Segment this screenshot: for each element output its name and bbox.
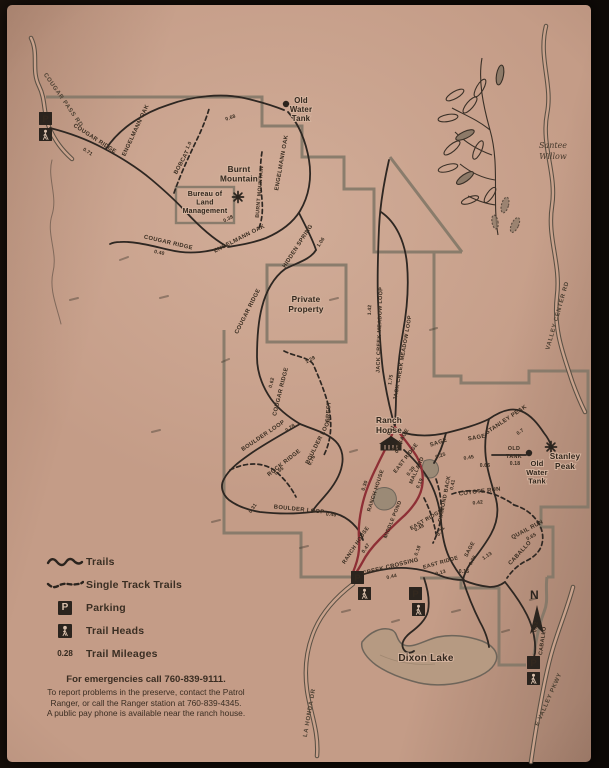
mileage-0-66: 0.66 bbox=[480, 463, 491, 469]
mileage-0-44: 0.44 bbox=[386, 573, 398, 581]
svg-text:P: P bbox=[354, 573, 361, 584]
mileage-0-68: 0.68 bbox=[225, 113, 237, 122]
peak-marker bbox=[546, 442, 557, 453]
mileage-1-75: 1.75 bbox=[387, 374, 395, 385]
mileage-0-31: 0.31 bbox=[248, 502, 259, 514]
mileage-0-30: 0.30 bbox=[361, 480, 370, 492]
landmark-stanley-peak: StanleyPeak bbox=[550, 452, 581, 471]
mileage-0-15: 0.15 bbox=[459, 569, 470, 575]
landmark-burnt-mountain: BurntMountain bbox=[220, 165, 258, 184]
photo-of-trail-map: { "photo": { "paper_color": "#c49c87", "… bbox=[0, 0, 609, 768]
mileage-0-62: 0.62 bbox=[268, 377, 276, 389]
svg-text:P: P bbox=[530, 658, 537, 669]
mileage-0-42: 0.42 bbox=[472, 499, 483, 506]
legend-row-trails: Trails bbox=[44, 551, 274, 572]
water-tank-marker bbox=[526, 450, 532, 456]
parking-marker: P bbox=[39, 112, 52, 125]
mileage-0-47: 0.47 bbox=[361, 542, 372, 554]
water-tank-marker bbox=[283, 101, 289, 107]
mileage-1-42: 1.42 bbox=[367, 305, 373, 316]
parking-marker: P bbox=[527, 656, 540, 669]
landmark-private-property: PrivateProperty bbox=[288, 295, 324, 314]
svg-text:P: P bbox=[42, 114, 49, 125]
mileage-0-18: 0.18 bbox=[413, 545, 422, 557]
santee-willow-illustration bbox=[437, 58, 521, 235]
mileage-0-7: 0.7 bbox=[516, 428, 526, 437]
legend-row-single-track: Single Track Trails bbox=[44, 574, 274, 595]
trail-sage-east bbox=[398, 419, 489, 435]
mileage-1-13: 1.13 bbox=[481, 551, 493, 562]
peak-marker bbox=[233, 192, 244, 203]
mileage-0-46: 0.46 bbox=[326, 511, 337, 518]
mileage-0-28: 0.28 bbox=[284, 423, 296, 434]
label-tank: TANK bbox=[506, 454, 522, 460]
trailhead-marker bbox=[358, 587, 371, 600]
trail-quail-run bbox=[507, 505, 543, 578]
notes-line-2: Ranger, or call the Ranger station at 76… bbox=[30, 698, 262, 709]
mallard-pond bbox=[422, 460, 439, 478]
landmark-old-water-tank-north: OldWaterTank bbox=[290, 96, 312, 123]
label-jack-creek-meadow-loop: JACK CREEK MEADOW LOOP bbox=[375, 287, 384, 373]
illustration-caption: SanteeWillow bbox=[539, 141, 567, 161]
trailhead-marker bbox=[527, 672, 540, 685]
mileage-0-13: 0.13 bbox=[435, 569, 447, 578]
label-east-ridge: EAST RIDGE bbox=[422, 555, 459, 571]
emergency-phone-line: For emergencies call 760-839-9111. bbox=[30, 674, 262, 685]
map-legend: Trails Single Track Trails P Parking Tra… bbox=[44, 551, 274, 666]
trail-creek-junction-east bbox=[463, 580, 505, 587]
trailhead-icon bbox=[58, 624, 72, 638]
landmark-bureau-of-land-management: Bureau ofLandManagement bbox=[183, 191, 228, 215]
legend-row-trail-heads: Trail Heads bbox=[44, 620, 274, 641]
legend-row-mileages: 0.28 Trail Mileages bbox=[44, 643, 274, 664]
mileage-1-06: 1.06 bbox=[316, 236, 327, 248]
notes-line-1: To report problems in the preserve, cont… bbox=[30, 687, 262, 698]
label-sage: SAGE bbox=[429, 437, 448, 448]
single-track-line-icon bbox=[44, 578, 86, 592]
legend-row-parking: P Parking bbox=[44, 597, 274, 618]
label-rock-ridge: ROCK RIDGE bbox=[267, 448, 303, 478]
parking-icon: P bbox=[58, 601, 72, 615]
mileage-0-31: 0.31 bbox=[436, 525, 447, 537]
trail-crest bbox=[284, 351, 331, 455]
trail-rock-ridge bbox=[230, 464, 296, 497]
road-la-honda bbox=[306, 584, 353, 756]
trailhead-marker bbox=[39, 128, 52, 141]
landmark-dixon-lake: Dixon Lake bbox=[398, 653, 454, 664]
label-engelmann-oak: ENGELMANN OAK bbox=[121, 103, 150, 157]
mileage-0-41: 0.41 bbox=[449, 479, 457, 491]
label-cougar-ridge: COUGAR RIDGE bbox=[72, 123, 117, 155]
label-sage: SAGE bbox=[468, 434, 487, 443]
mileage-1-28: 1.28 bbox=[304, 355, 316, 365]
creek bbox=[50, 160, 61, 324]
mileage-0-40: 0.40 bbox=[153, 249, 165, 257]
mileage-0-71: 0.71 bbox=[81, 147, 93, 158]
landmark-old-water-tank-east: OldWaterTank bbox=[526, 459, 548, 486]
mileage-0-25: 0.25 bbox=[435, 452, 447, 461]
trail-bobcat bbox=[174, 109, 209, 193]
label-engelmann-oak: ENGELMANN OAK bbox=[213, 223, 266, 254]
label-caballo: CABALLO bbox=[508, 540, 533, 567]
north-label: N bbox=[530, 588, 539, 602]
trails-line-icon bbox=[44, 555, 86, 569]
emergency-notes: For emergencies call 760-839-9111. To re… bbox=[30, 674, 262, 719]
svg-text:P: P bbox=[412, 589, 419, 600]
mileage-0-18: 0.18 bbox=[510, 461, 521, 467]
notes-line-3: A public pay phone is available near the… bbox=[30, 708, 262, 719]
trail-boulder-loop-west bbox=[222, 424, 363, 540]
mileage-0-45: 0.45 bbox=[463, 454, 474, 462]
label-old: OLD bbox=[508, 446, 520, 452]
trailhead-marker bbox=[412, 603, 425, 616]
label-engelmann-oak: ENGELMANN OAK bbox=[274, 134, 290, 191]
parking-marker: P bbox=[409, 587, 422, 600]
mileage-number-icon: 0.28 bbox=[57, 649, 73, 658]
